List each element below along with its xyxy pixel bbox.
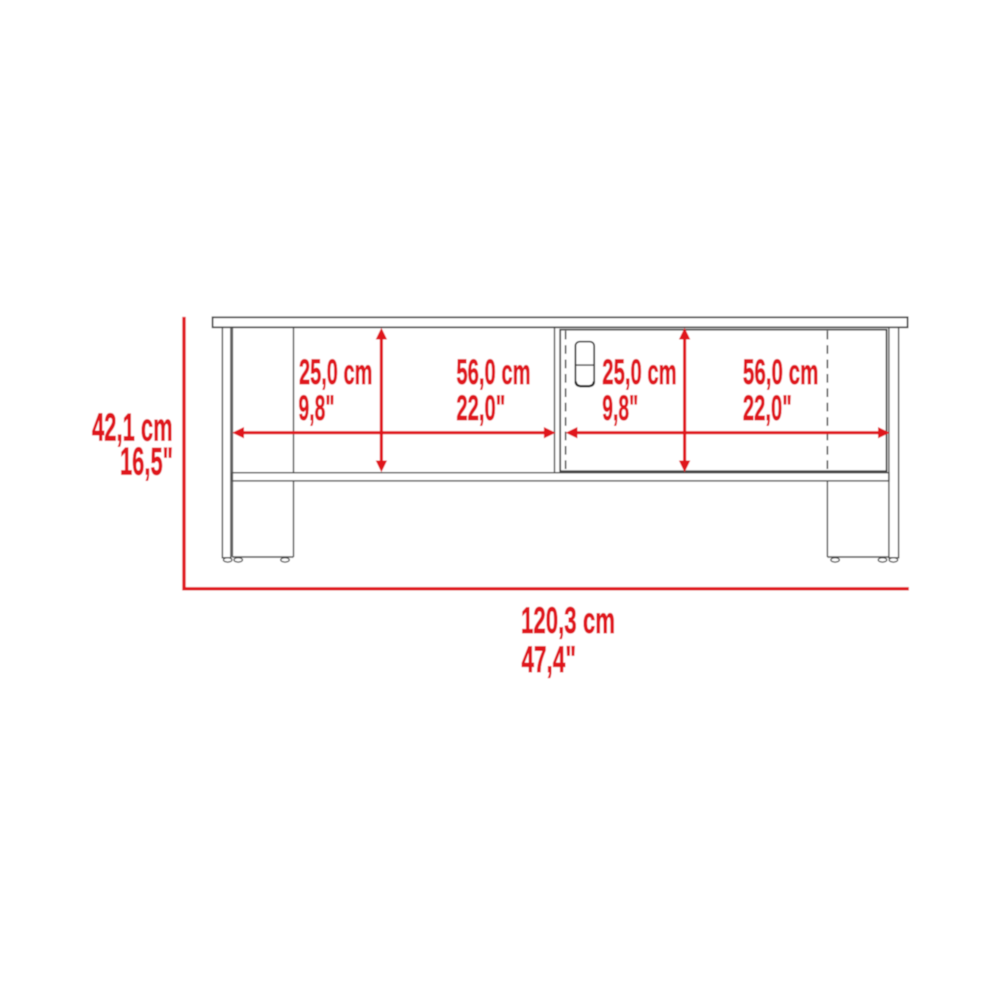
svg-text:9,8": 9,8" — [602, 388, 638, 428]
svg-text:47,4": 47,4" — [522, 639, 577, 680]
svg-text:22,0": 22,0" — [743, 388, 792, 428]
svg-text:25,0 cm: 25,0 cm — [602, 352, 676, 392]
svg-text:22,0": 22,0" — [456, 388, 505, 428]
svg-text:9,8": 9,8" — [299, 388, 335, 428]
svg-text:120,3 cm: 120,3 cm — [521, 600, 615, 641]
svg-text:25,0 cm: 25,0 cm — [299, 352, 372, 392]
svg-text:56,0 cm: 56,0 cm — [456, 352, 530, 392]
svg-text:16,5": 16,5" — [120, 440, 173, 483]
svg-text:56,0 cm: 56,0 cm — [743, 352, 819, 392]
